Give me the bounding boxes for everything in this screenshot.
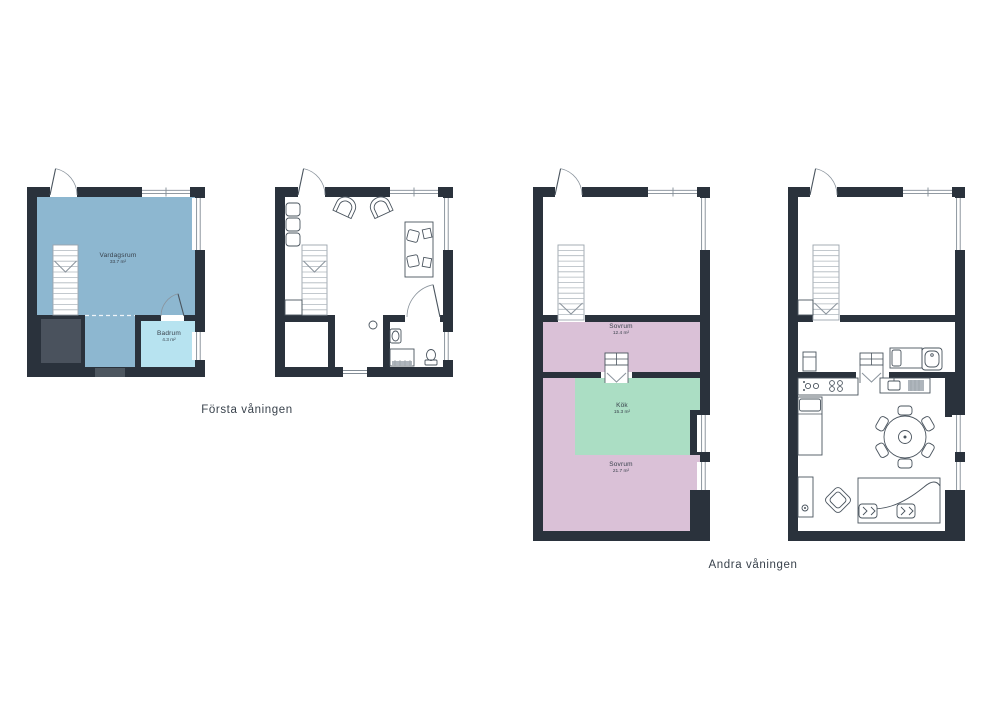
room-area: 33.7 m² xyxy=(100,260,137,266)
kitchen-counter-sink xyxy=(880,377,930,393)
window-badrum xyxy=(192,332,206,360)
internal-steps xyxy=(860,353,883,383)
entry-door xyxy=(810,169,837,197)
kitchen-counter-stove xyxy=(798,378,858,395)
room-name: Sovrum xyxy=(609,461,633,469)
room-label-sovrum1: Sovrum 12.4 m² xyxy=(609,323,633,337)
plan-floor1-colored xyxy=(27,159,207,378)
window-right-low xyxy=(697,462,711,490)
window-top xyxy=(903,187,952,197)
window-right-mid xyxy=(697,415,711,452)
caption-second-floor: Andra våningen xyxy=(709,559,798,571)
room-label-vardagsrum: Vardagsrum 33.7 m² xyxy=(100,252,137,266)
room-name: Kök xyxy=(614,402,630,410)
plan-floor1-furnished xyxy=(275,159,455,378)
plan-floor2-furnished xyxy=(788,159,968,541)
entry-door xyxy=(50,169,77,197)
desk xyxy=(405,222,433,277)
window-right-top xyxy=(697,198,711,250)
room-label-sovrum2: Sovrum 21.7 m² xyxy=(609,461,633,475)
entry-door xyxy=(298,169,325,197)
room-kok xyxy=(575,378,700,455)
staircase xyxy=(302,245,327,315)
room-badrum xyxy=(141,321,195,367)
window-bathroom xyxy=(440,332,454,360)
window-right-top xyxy=(952,198,966,250)
internal-steps xyxy=(605,353,628,383)
window-right-top xyxy=(440,198,454,250)
window-top xyxy=(142,187,190,197)
room-area: 12.4 m² xyxy=(609,331,633,337)
staircase xyxy=(813,245,839,320)
caption-first-floor: Första våningen xyxy=(201,404,292,416)
room-name: Sovrum xyxy=(609,323,633,331)
room-name: Badrum xyxy=(157,330,181,338)
staircase xyxy=(53,245,78,315)
room-area: 21.7 m² xyxy=(609,469,633,475)
window-right-top xyxy=(192,198,206,250)
threshold-door xyxy=(343,367,367,377)
entry-door xyxy=(555,169,582,197)
room-label-kok: Kök 15.3 m² xyxy=(614,402,630,416)
plan-floor2-colored xyxy=(533,159,713,541)
window-top xyxy=(390,187,438,197)
threshold xyxy=(95,368,125,377)
hallway-area xyxy=(85,315,135,367)
room-name: Vardagsrum xyxy=(100,252,137,260)
wall-chairs xyxy=(286,203,300,246)
room-label-badrum: Badrum 4.3 m² xyxy=(157,330,181,344)
room-area: 4.3 m² xyxy=(157,338,181,344)
window-right-low xyxy=(952,462,966,490)
closet-room xyxy=(41,319,81,363)
staircase xyxy=(558,245,584,320)
floorplan-canvas: Vardagsrum 33.7 m² Badrum 4.3 m² Sovrum … xyxy=(0,0,1000,707)
room-area: 15.3 m² xyxy=(614,410,630,416)
window-top xyxy=(648,187,697,197)
window-right-mid xyxy=(952,415,966,452)
